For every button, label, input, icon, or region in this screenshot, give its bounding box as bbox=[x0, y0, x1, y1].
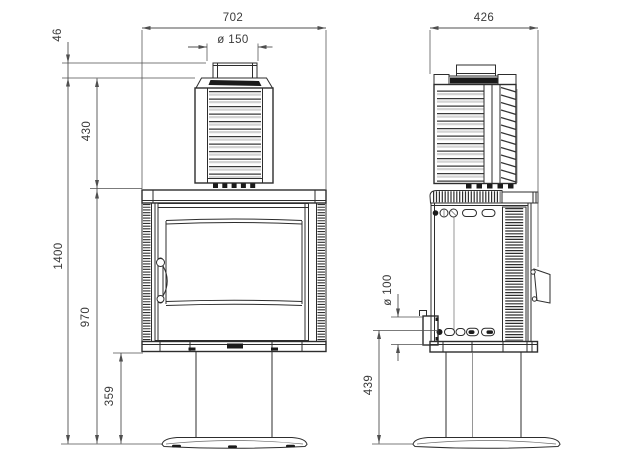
air-control bbox=[227, 344, 243, 349]
firebox-front bbox=[142, 203, 326, 342]
flue-collar bbox=[213, 63, 257, 78]
dim-upper-section-height: 430 bbox=[80, 117, 94, 145]
dim-flue-diameter: ø 150 bbox=[209, 33, 257, 47]
lower-vent-holes bbox=[437, 328, 495, 336]
dim-side-depth: 426 bbox=[461, 11, 507, 25]
front-view bbox=[142, 63, 326, 448]
drawing-canvas bbox=[0, 0, 624, 460]
air-intake-port bbox=[420, 311, 439, 346]
dim-body-top-height: 970 bbox=[79, 303, 93, 331]
top-plate-front bbox=[142, 190, 326, 203]
pedestal-front bbox=[162, 352, 307, 449]
bottom-plate-front bbox=[142, 342, 326, 352]
door-glass bbox=[166, 219, 302, 306]
ribbed-collar-side bbox=[430, 191, 538, 204]
dimension-lines bbox=[61, 26, 538, 444]
bottom-plate-side bbox=[430, 342, 538, 353]
flue-collar-side bbox=[457, 65, 496, 76]
dim-total-height: 1400 bbox=[52, 239, 66, 273]
louver-box-front bbox=[195, 78, 273, 188]
dim-flue-collar-height: 46 bbox=[51, 21, 65, 49]
dim-pedestal-height: 359 bbox=[103, 382, 117, 410]
door-handle-side bbox=[531, 269, 550, 303]
dim-air-intake-diameter: ø 100 bbox=[381, 268, 395, 312]
upper-vent-holes bbox=[433, 209, 495, 217]
pedestal-side bbox=[413, 352, 560, 448]
louver-box-side bbox=[434, 75, 517, 189]
side-fins bbox=[501, 88, 517, 184]
dim-front-width: 702 bbox=[210, 11, 256, 25]
dim-air-intake-height: 439 bbox=[362, 371, 376, 399]
technical-drawing-page: 702 ø 150 46 430 1400 970 359 426 ø 100 … bbox=[0, 0, 624, 460]
firebox-side bbox=[420, 203, 551, 345]
